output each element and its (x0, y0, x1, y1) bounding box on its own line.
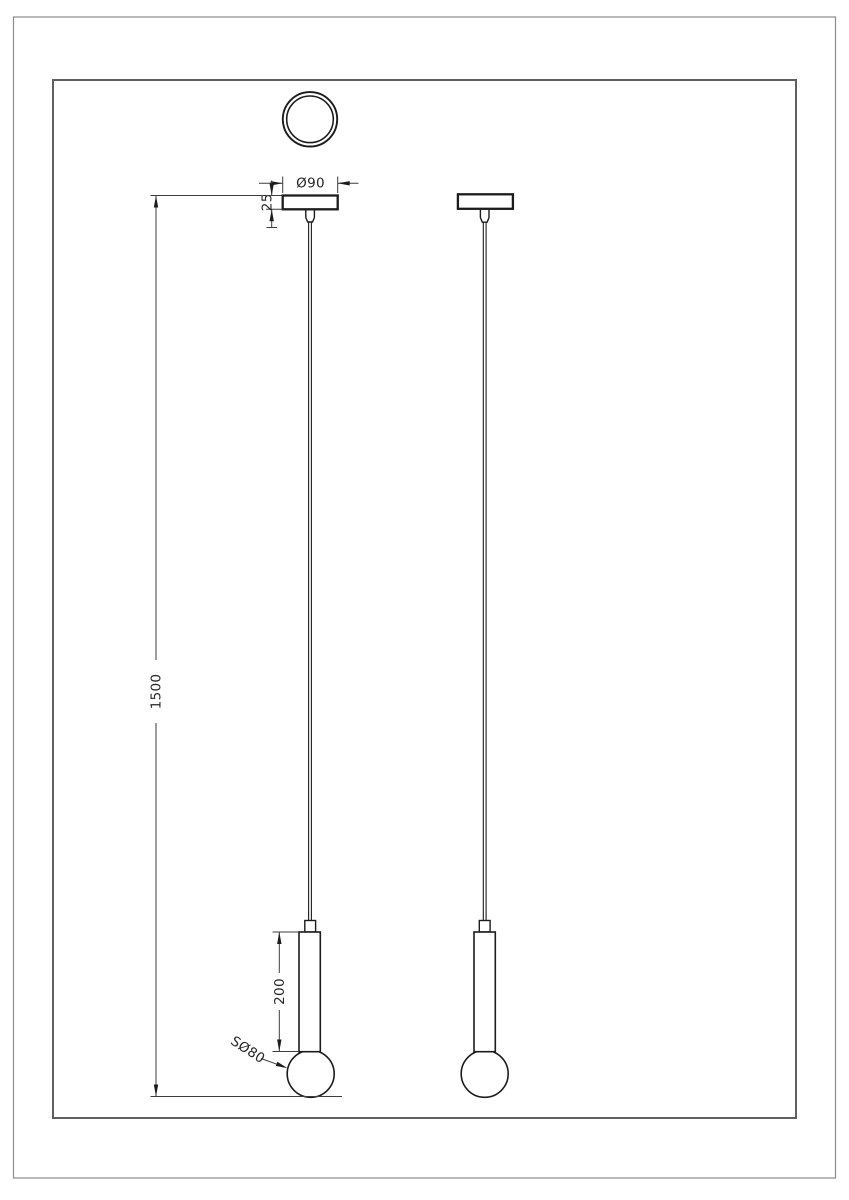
drawing-sheet: Ø90 25 1500 (0, 0, 849, 1200)
dimension-label-tube-length: 200 (272, 978, 288, 1005)
cord-grip-neck (306, 209, 315, 222)
dimension-tube-length: 200 (272, 932, 299, 1052)
dimension-annotations: Ø90 25 1500 (149, 176, 359, 1097)
dimension-label-canopy-diameter: Ø90 (296, 176, 325, 192)
cord-ferrule (479, 921, 490, 933)
arrowhead-left-icon (338, 181, 350, 185)
arrowhead-up-icon (154, 196, 158, 208)
arrowhead-down-icon (154, 1085, 158, 1097)
ceiling-canopy (283, 196, 338, 210)
arrowhead-up-icon (277, 932, 281, 944)
arrowhead-leader-icon (276, 1062, 288, 1069)
inner-frame-border (53, 80, 796, 1118)
front-view-left (283, 196, 338, 1098)
top-view-canopy (283, 92, 337, 146)
bulb-sphere (461, 1050, 508, 1097)
bulb-sphere (287, 1050, 334, 1097)
frame (14, 17, 836, 1178)
lamp-tube (299, 932, 320, 1052)
dimension-canopy-diameter: Ø90 (259, 176, 359, 194)
dimension-sphere-diameter: SØ80 (228, 1033, 288, 1068)
front-view-right (458, 194, 513, 1097)
lamp-tube (474, 932, 495, 1052)
outer-frame-border (14, 17, 836, 1178)
technical-drawing-canvas: Ø90 25 1500 (0, 0, 849, 1200)
cord-ferrule (305, 921, 316, 933)
cord-grip-neck (480, 209, 489, 222)
arrowhead-down-icon (277, 1040, 281, 1052)
dimension-canopy-height: 25 (259, 181, 282, 228)
top-view-outer-circle (283, 92, 337, 146)
dimension-label-sphere-diameter: SØ80 (228, 1033, 268, 1067)
top-view-inner-circle (287, 96, 334, 143)
ceiling-canopy (458, 194, 513, 209)
dimension-label-canopy-height: 25 (259, 193, 275, 211)
dimension-label-suspension-length: 1500 (149, 674, 165, 710)
